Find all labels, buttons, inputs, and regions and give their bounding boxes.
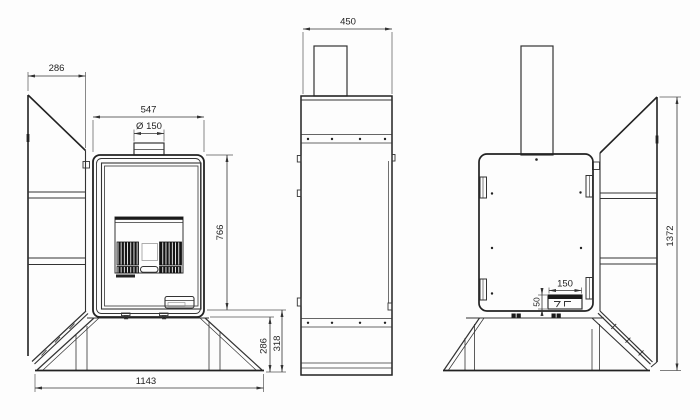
back-panel bbox=[479, 154, 593, 318]
side-chimney bbox=[314, 46, 347, 96]
back-top-screw bbox=[535, 158, 538, 161]
back-wing-edge-latch bbox=[656, 136, 659, 144]
back-feet bbox=[512, 314, 561, 318]
dim-label-flue-diameter: Ø 150 bbox=[136, 121, 162, 132]
power-socket-cutout bbox=[548, 295, 582, 309]
dim-label-wing-width: 286 bbox=[49, 63, 65, 74]
side-body bbox=[297, 96, 395, 375]
back-hinge-brackets bbox=[480, 176, 593, 301]
side-screws-bottom bbox=[307, 322, 386, 324]
front-stove-body bbox=[93, 155, 204, 319]
dim-label-overall-height: 1372 bbox=[665, 225, 676, 246]
stove-door bbox=[102, 163, 202, 309]
front-wing-panel bbox=[27, 95, 90, 364]
back-view: 150 50 1372 bbox=[443, 46, 681, 371]
back-wing-panel bbox=[593, 97, 659, 367]
wing-edge-latch bbox=[27, 134, 30, 142]
burner-slats-left bbox=[117, 242, 139, 265]
dim-label-body-height: 766 bbox=[215, 225, 226, 241]
dim-label-pedestal-height-outer: 318 bbox=[272, 336, 283, 352]
burner-window bbox=[142, 244, 158, 261]
side-view: 450 bbox=[297, 17, 395, 376]
dim-label-depth: 450 bbox=[340, 17, 356, 28]
side-screws-top bbox=[307, 138, 386, 140]
burner-unit bbox=[115, 217, 183, 278]
burner-slats-right bbox=[160, 242, 182, 265]
back-chimney bbox=[521, 46, 553, 155]
front-flue-collar bbox=[134, 143, 164, 155]
dim-label-pedestal-height-inner: 286 bbox=[259, 338, 270, 354]
burner-handle bbox=[141, 267, 159, 273]
dim-label-body-width: 547 bbox=[141, 105, 157, 116]
dim-label-overall-width: 1143 bbox=[136, 376, 156, 387]
stove-dimension-drawing: 286 547 Ø 150 766 286 318 1143 bbox=[0, 0, 700, 420]
technical-drawing-page: 286 547 Ø 150 766 286 318 1143 bbox=[0, 0, 700, 420]
dim-label-socket-width: 150 bbox=[557, 279, 573, 290]
dim-label-socket-height: 50 bbox=[532, 297, 542, 307]
front-view: 286 547 Ø 150 766 286 318 1143 bbox=[27, 63, 286, 392]
brand-logo-mark bbox=[116, 275, 135, 278]
